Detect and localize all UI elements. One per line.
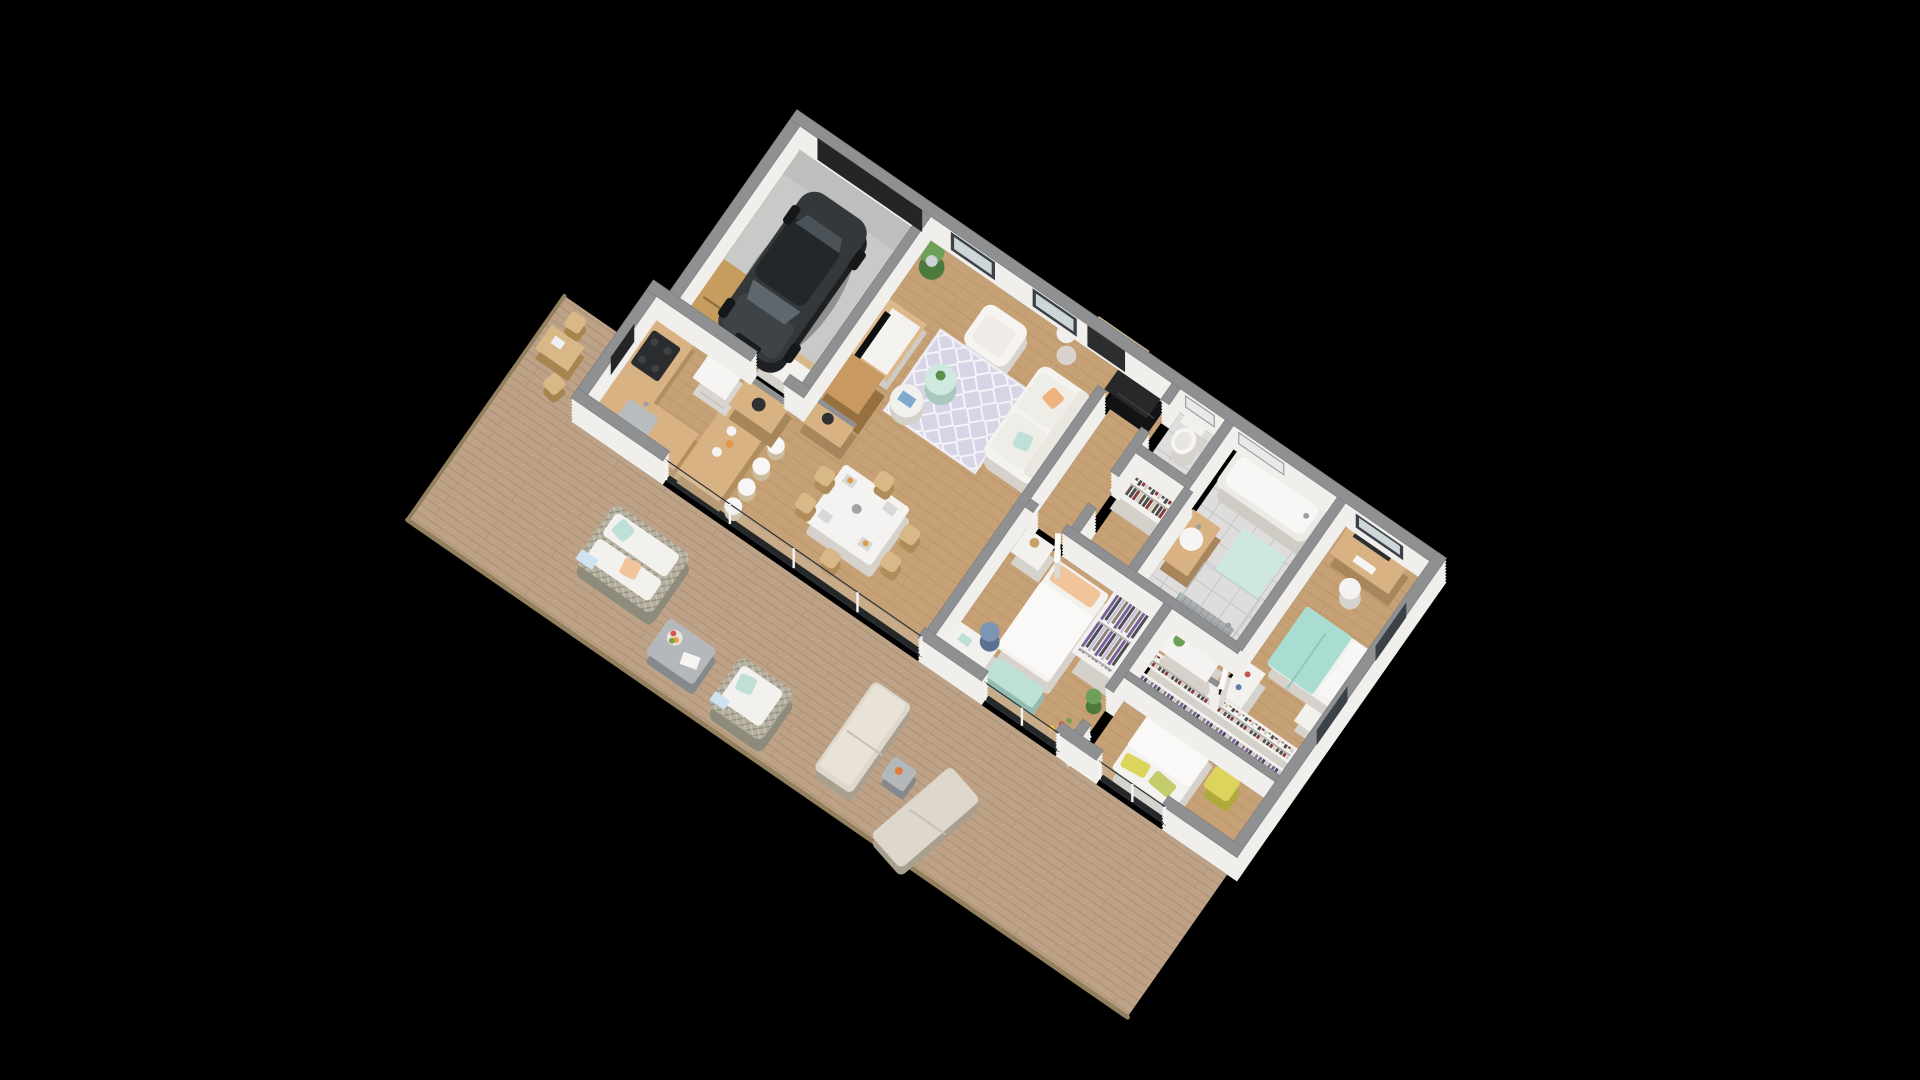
sliding-glass-bedroom3-post (1098, 761, 1100, 779)
door-leaf-children (1054, 533, 1061, 563)
sliding-glass-living-post (856, 592, 858, 612)
sliding-glass-living-post (792, 548, 794, 568)
floor-plan-screenshot: 3D isometric floor plan render of a sing… (0, 0, 1920, 1080)
sliding-glass-children-post (1058, 733, 1060, 751)
sliding-glass-bedroom3-post (1164, 807, 1166, 825)
sliding-glass-bedroom3-post (1131, 784, 1133, 802)
sliding-glass-living-post (729, 504, 731, 524)
sliding-glass-children-post (1021, 708, 1023, 726)
sliding-glass-children-post (984, 682, 986, 700)
sliding-glass-living-post (920, 636, 922, 656)
floor-plan-3d-render: 3D isometric floor plan render of a sing… (0, 0, 1920, 1080)
sliding-glass-living-post (665, 460, 667, 480)
